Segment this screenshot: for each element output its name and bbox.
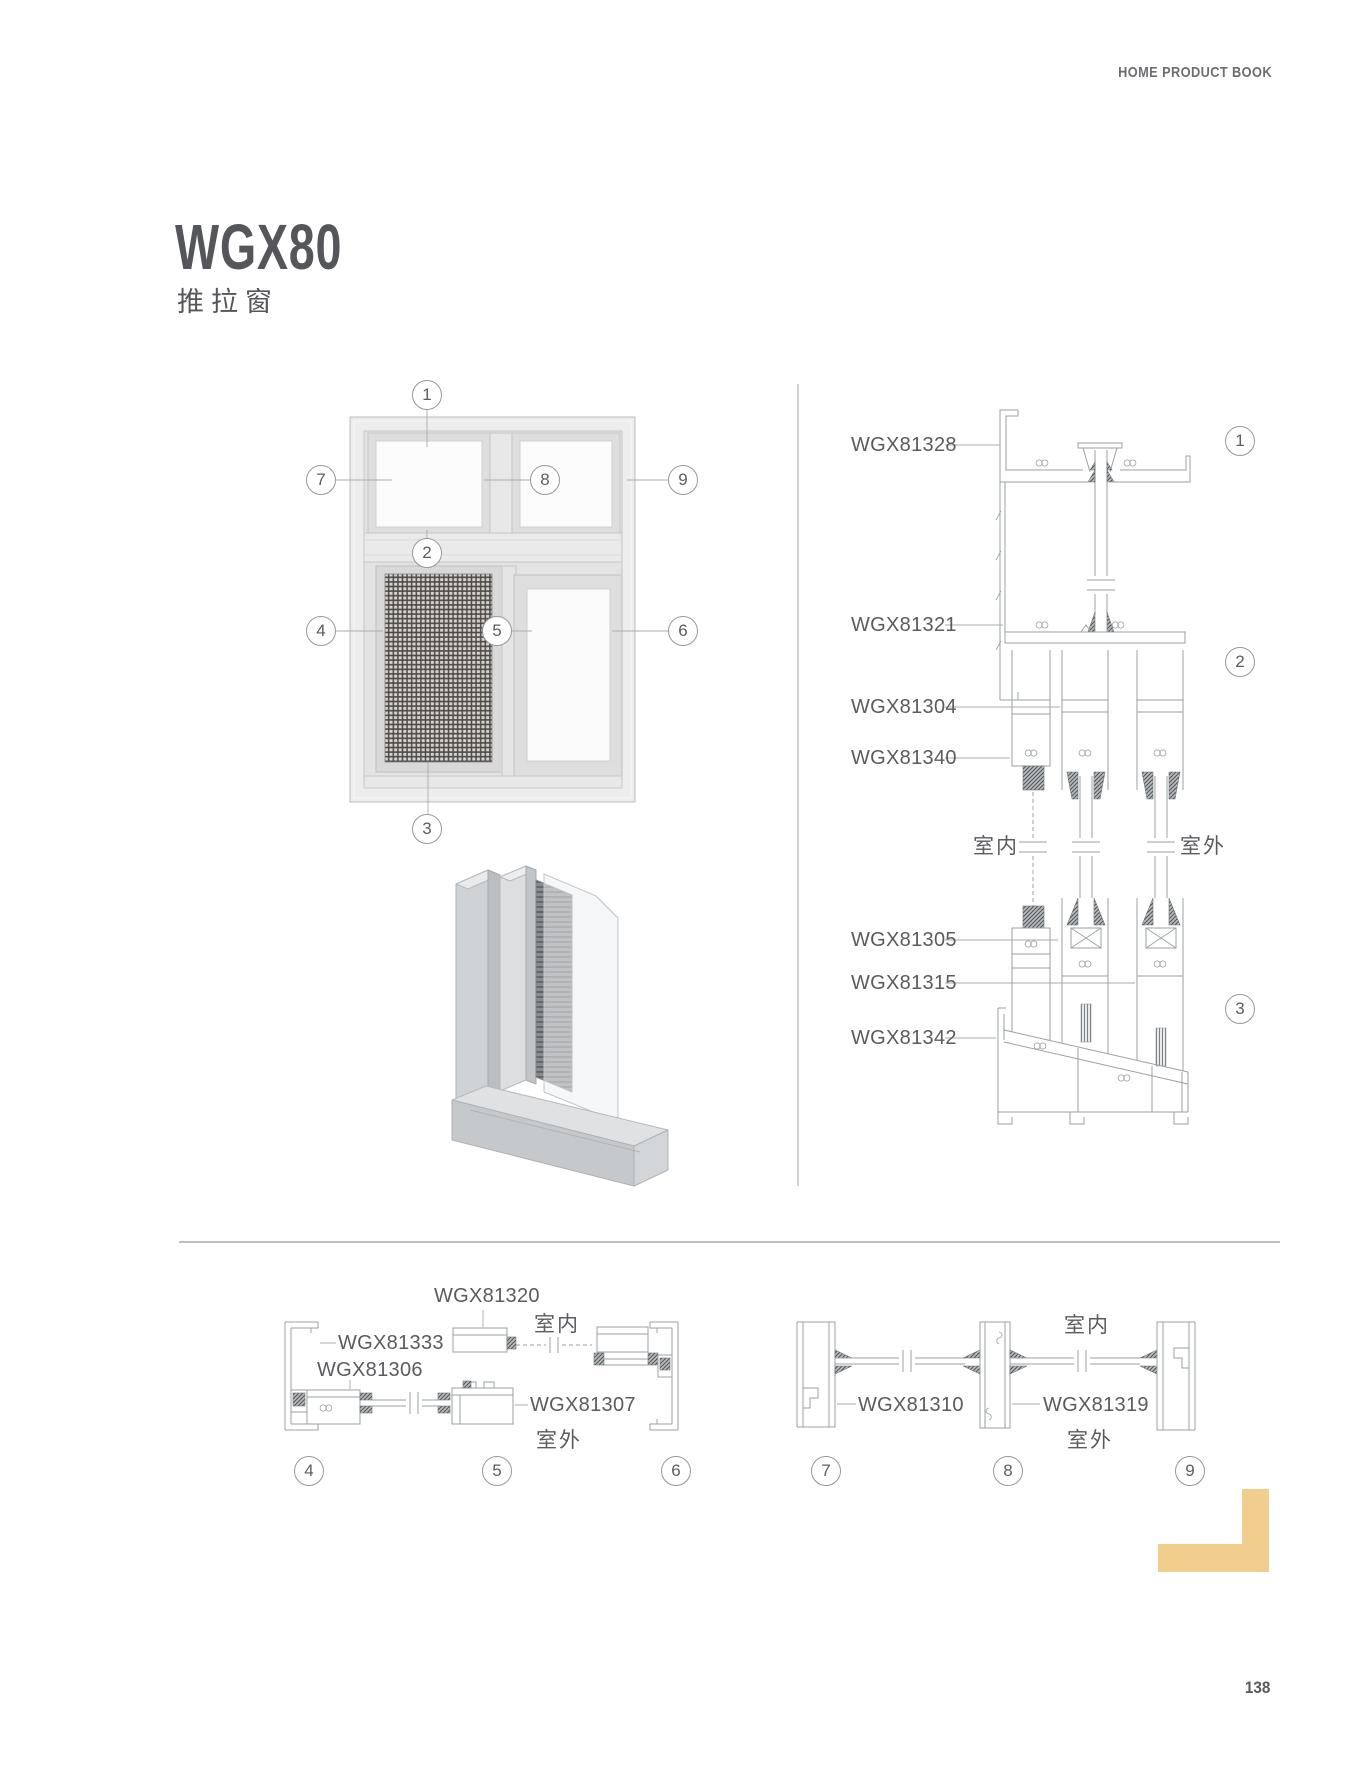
vertical-section-drawing [945,410,1190,1124]
product-category-subtitle: 推拉窗 [177,288,279,318]
section-callout-1: 1 [1225,426,1255,456]
part-label-wgx81320: WGX81320 [434,1285,540,1307]
section-callout-3: 3 [1225,994,1255,1024]
indoor-label-vertical: 室内 [973,835,1019,858]
outdoor-label-vertical: 室外 [1180,835,1226,858]
part-label-wgx81304: WGX81304 [851,696,957,718]
section-callout-8: 8 [993,1456,1023,1486]
part-label-wgx81310: WGX81310 [858,1394,964,1416]
callout-6: 6 [668,616,698,646]
elevation-drawing [336,410,668,814]
callout-8: 8 [530,465,560,495]
part-label-wgx81328: WGX81328 [851,434,957,456]
outdoor-label-right: 室外 [1067,1429,1113,1452]
part-label-wgx81319: WGX81319 [1043,1394,1149,1416]
callout-2: 2 [412,538,442,568]
part-label-wgx81333: WGX81333 [338,1332,444,1354]
part-label-wgx81315: WGX81315 [851,972,957,994]
outdoor-label-left: 室外 [536,1429,582,1452]
callout-3: 3 [412,814,442,844]
section-callout-5: 5 [482,1456,512,1486]
part-label-wgx81321: WGX81321 [851,614,957,636]
product-model-title: WGX80 [175,215,342,279]
section-callout-7: 7 [811,1456,841,1486]
indoor-label-left: 室内 [534,1313,580,1336]
part-label-wgx81307: WGX81307 [530,1394,636,1416]
callout-9: 9 [668,465,698,495]
part-label-wgx81305: WGX81305 [851,929,957,951]
section-callout-9: 9 [1175,1456,1205,1486]
callout-4: 4 [306,616,336,646]
page-number: 138 [1244,1678,1270,1698]
book-title: HOME PRODUCT BOOK [1118,64,1272,81]
part-label-wgx81340: WGX81340 [851,747,957,769]
indoor-label-right: 室内 [1064,1314,1110,1337]
mesh-screen [385,574,492,762]
section-callout-6: 6 [661,1456,691,1486]
part-label-wgx81342: WGX81342 [851,1027,957,1049]
profile-3d-render [452,866,668,1186]
accent-corner-mark [1158,1489,1269,1572]
callout-1: 1 [412,380,442,410]
catalog-page: HOME PRODUCT BOOK WGX80 推拉窗 WGX81328 WGX… [0,0,1358,1772]
section-callout-2: 2 [1225,647,1255,677]
callout-5: 5 [482,616,512,646]
glass-3d [544,874,618,1122]
callout-7: 7 [306,465,336,495]
part-label-wgx81306: WGX81306 [317,1359,423,1381]
section-callout-4: 4 [294,1456,324,1486]
